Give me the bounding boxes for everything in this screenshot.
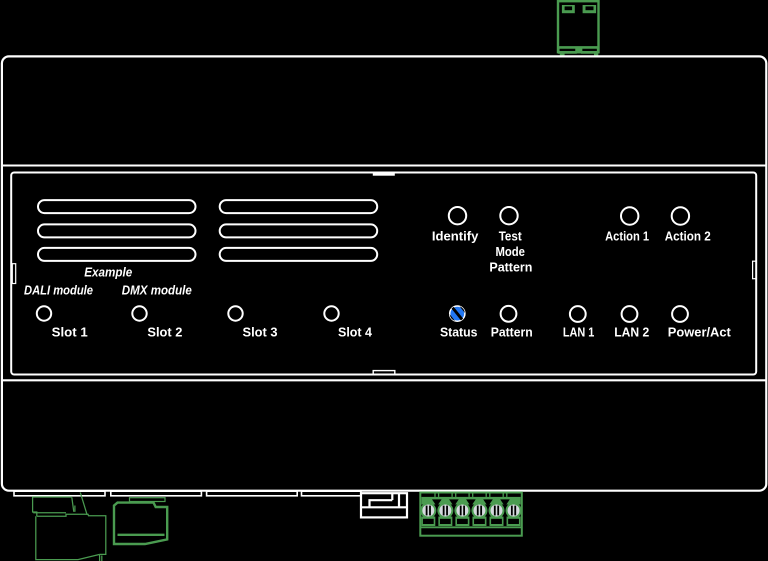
svg-text:Power/Act: Power/Act bbox=[668, 324, 732, 339]
svg-text:LAN 1: LAN 1 bbox=[563, 324, 595, 339]
svg-text:LAN 2: LAN 2 bbox=[614, 324, 649, 339]
svg-text:DALI module: DALI module bbox=[24, 283, 93, 298]
svg-text:DMX module: DMX module bbox=[122, 283, 192, 298]
svg-text:Test: Test bbox=[499, 228, 523, 243]
svg-text:Slot 4: Slot 4 bbox=[338, 324, 373, 339]
svg-text:Slot 3: Slot 3 bbox=[243, 324, 278, 339]
svg-text:Pattern: Pattern bbox=[489, 260, 532, 275]
svg-text:Mode: Mode bbox=[495, 244, 525, 259]
svg-text:Action 1: Action 1 bbox=[605, 228, 649, 243]
svg-text:Status: Status bbox=[440, 324, 478, 339]
svg-text:Example: Example bbox=[84, 264, 132, 279]
svg-text:Slot 1: Slot 1 bbox=[52, 324, 88, 339]
svg-text:Action 2: Action 2 bbox=[665, 228, 711, 243]
svg-text:Pattern: Pattern bbox=[491, 324, 533, 339]
svg-text:Identify: Identify bbox=[432, 228, 479, 243]
svg-text:Slot 2: Slot 2 bbox=[147, 324, 182, 339]
